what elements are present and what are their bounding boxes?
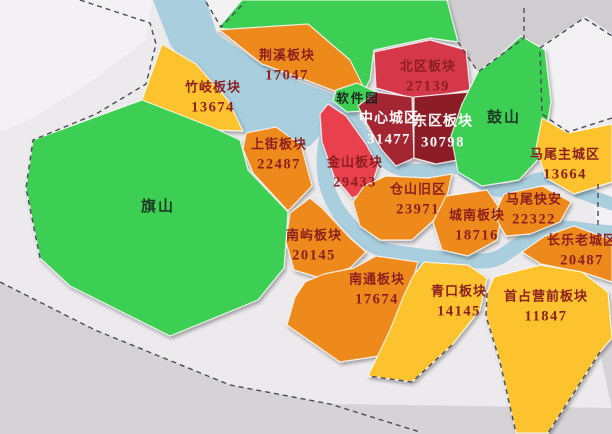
map-canvas (0, 0, 612, 434)
region-beiqu (374, 40, 470, 98)
housing-price-map: 荆溪板块17047竹岐板块13674旗山上街板块22487南屿板块20145金山… (0, 0, 612, 434)
